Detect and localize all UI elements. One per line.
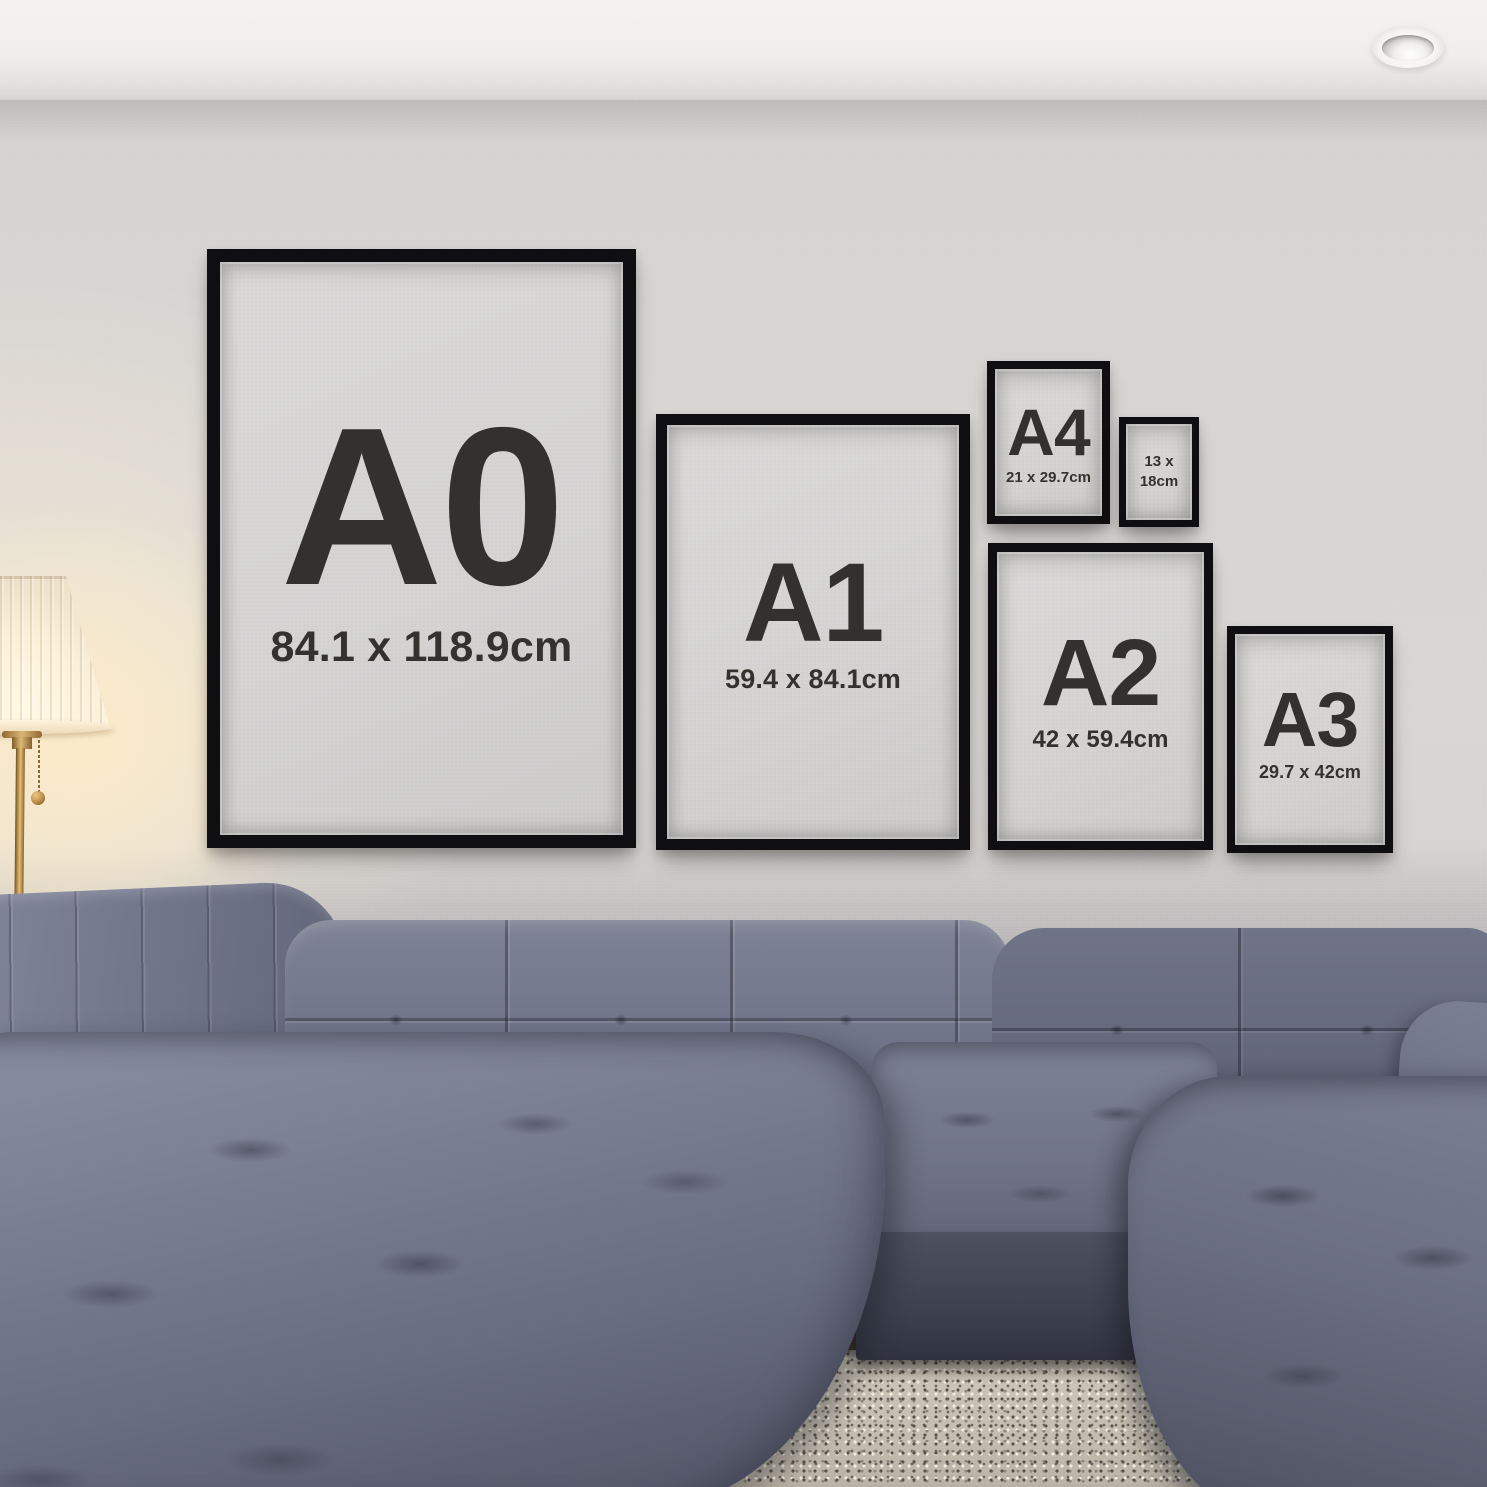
sofa-left-chaise-cushion [0,1032,885,1487]
sectional-sofa [0,0,1487,1487]
living-room-scene: A0 84.1 x 118.9cm A1 59.4 x 84.1cm A4 21… [0,0,1487,1487]
sofa-right-chaise-cushion [1128,1076,1487,1487]
